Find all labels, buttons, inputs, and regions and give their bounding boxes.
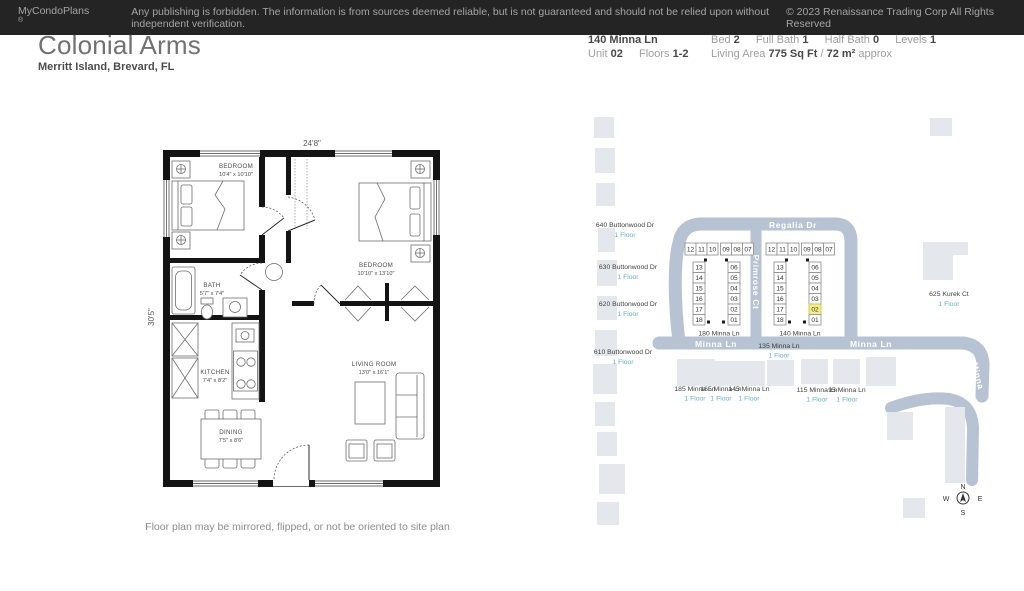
unit-number: 12 [768,247,776,254]
compass-rose: N W E S [943,484,983,517]
levels-label: Levels [895,34,927,46]
unit-number: 01 [811,317,819,324]
unit-number: 02 [730,307,738,314]
unit-number: 03 [730,296,738,303]
full-bath-value: 1 [802,34,808,46]
building-address: 180 Minna Ln [698,331,739,338]
footer-disclaimer: Any publishing is forbidden. The informa… [131,6,786,30]
page-title: Colonial Arms [38,30,201,61]
room-label: LIVING ROOM [352,361,397,368]
building-floors: 1 Floor [612,359,634,366]
unit-number: 06 [730,265,738,272]
entry-marker-icon [704,259,707,262]
floor-plan-note: Floor plan may be mirrored, flipped, or … [145,521,450,533]
compass-w: W [943,496,950,503]
entry-marker-icon [806,259,809,262]
room-dims: 5'7" x 7'4" [200,291,224,297]
registered-mark: ® [18,17,23,24]
unit-number: 07 [825,247,833,254]
unit-number: 13 [776,265,784,272]
building-address: 620 Buttonwood Dr [599,301,658,308]
living-area-separator: / [820,48,823,60]
entry-marker-icon [788,321,791,324]
brand-text: MyCondoPlans [18,5,89,17]
unit-number: 14 [776,275,784,282]
building-floors: 1 Floor [768,353,790,360]
unit-number: 04 [730,286,738,293]
room-dims: 10'10" x 13'10" [358,271,395,277]
unit-number: 09 [803,247,811,254]
unit-number: 03 [811,296,819,303]
building-address: 640 Buttonwood Dr [596,222,655,229]
unit-number: 08 [814,247,822,254]
room-dims: 10'4" x 10'10" [219,172,253,178]
page-subtitle: Merritt Island, Brevard, FL [38,61,174,73]
living-area-value: 775 Sq Ft [769,48,818,60]
unit-number: 01 [730,317,738,324]
floor-plan-drawing: 24'8" 30'5" [145,135,450,495]
unit-number: 05 [730,275,738,282]
unit-number: 18 [695,317,703,324]
footer-copyright: © 2023 Renaissance Trading Corp All Righ… [786,6,1008,30]
living-area-label: Living Area [711,48,765,60]
map-buildings-left [593,117,625,525]
unit-number: 17 [776,307,784,314]
unit-number: 11 [779,247,786,254]
brand-name: MyCondoPlans ® [18,5,89,30]
building-floors-kurek: 1 Floor [938,301,960,308]
unit-number: 04 [811,286,819,293]
half-bath-value: 0 [873,34,879,46]
building-label-kurek: 625 Kurek Ct [929,291,969,298]
unit-number: 16 [776,296,784,303]
unit-number: 15 [776,286,784,293]
building-address: 140 Minna Ln [779,331,820,338]
compass-s: S [961,510,966,517]
compass-e: E [978,496,983,503]
unit-number: 14 [695,275,703,282]
floors-value: 1-2 [673,48,689,60]
half-bath-label: Half Bath [825,34,870,46]
bed-value: 2 [734,34,740,46]
unit-number: 10 [709,247,717,254]
entry-marker-icon [707,321,710,324]
bed-label: Bed [711,34,731,46]
bed-bath-line: Bed 2 Full Bath 1 Half Bath 0 Levels 1 [711,34,936,46]
room-label: BEDROOM [219,163,253,170]
unit-number: 12 [687,247,695,254]
room-label: BEDROOM [359,262,393,269]
room-label: DINING [219,429,242,436]
room-label: KITCHEN [200,369,229,376]
unit-number: 02 [811,307,819,314]
room-dims: 7'4" x 8'2" [203,378,227,384]
building-floors: 1 Floor [710,396,732,403]
plan-width-dimension: 24'8" [303,139,321,148]
map-buildings-right [887,118,968,518]
unit-number: 11 [698,247,705,254]
living-area-metric: 72 m² [827,48,856,60]
unit-number: 08 [733,247,741,254]
building-floors: 1 Floor [617,274,639,281]
compass-needle-icon [960,493,966,502]
street-label-minna-1: Minna Ln [695,339,737,349]
floors-label: Floors [639,48,670,60]
plan-height-dimension: 30'5" [147,308,156,326]
unit-number: 10 [790,247,798,254]
living-area-approx: approx [858,48,892,60]
building-floors: 1 Floor [836,397,858,404]
unit-number: 18 [776,317,784,324]
street-label-minna-2: Minna Ln [850,339,892,349]
floor-plan-page: Colonial Arms Merritt Island, Brevard, F… [0,0,1024,591]
room-dims: 7'5" x 8'6" [219,438,243,444]
building-floors: 1 Floor [617,311,639,318]
unit-number: 07 [744,247,752,254]
room-dims: 13'0" x 16'1" [359,370,390,376]
unit-number: 05 [811,275,819,282]
entry-marker-icon [803,321,806,324]
building-address: 630 Buttonwood Dr [599,264,658,271]
levels-value: 1 [930,34,936,46]
unit-address: 140 Minna Ln [588,34,658,46]
unit-number: 09 [722,247,730,254]
compass-n: N [960,484,965,491]
building-address: 95 Minna Ln [828,387,866,394]
building-floors: 1 Floor [738,396,760,403]
building-address: 145 Minna Ln [728,386,769,393]
unit-number: 17 [695,307,703,314]
unit-floors-line: Unit 02 Floors 1-2 [588,48,689,60]
unit-number: 15 [695,286,703,293]
building-address: 135 Minna Ln [758,343,799,350]
entry-marker-icon [722,321,725,324]
entry-marker-icon [725,259,728,262]
room-label: BATH [203,282,220,289]
building-address: 610 Buttonwood Dr [594,349,653,356]
building-floors: 1 Floor [684,396,706,403]
unit-label: Unit [588,48,608,60]
site-map: Regalia Dr Primrose Ct Minna Ln Minna Ln… [585,110,1024,525]
unit-number: 13 [695,265,703,272]
unit-value: 02 [611,48,623,60]
building-floors: 1 Floor [806,397,828,404]
living-area-line: Living Area 775 Sq Ft / 72 m² approx [711,48,892,60]
full-bath-label: Full Bath [756,34,799,46]
unit-number: 16 [695,296,703,303]
unit-number: 06 [811,265,819,272]
address-text: 140 Minna Ln [588,34,658,46]
street-label-regalia: Regalia Dr [769,220,817,230]
map-buildings-bottom [677,357,896,386]
street-label-primrose: Primrose Ct [751,255,761,310]
entry-marker-icon [785,259,788,262]
building-floors: 1 Floor [614,232,636,239]
